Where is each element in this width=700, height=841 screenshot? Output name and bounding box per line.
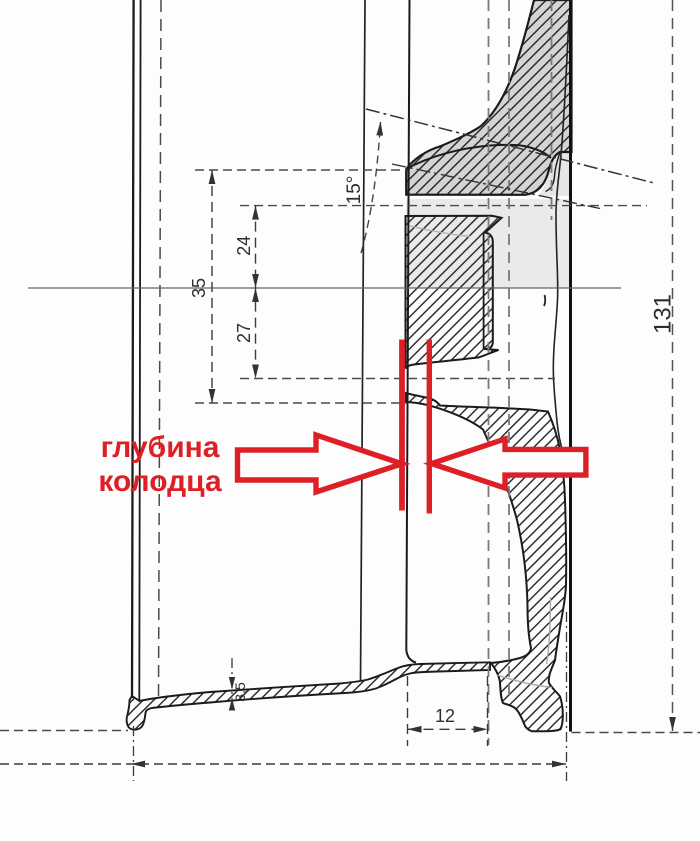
svg-text:12: 12 <box>435 706 455 726</box>
svg-text:35: 35 <box>189 278 209 298</box>
svg-text:24: 24 <box>234 236 254 256</box>
svg-text:3,5: 3,5 <box>232 682 248 702</box>
svg-text:27: 27 <box>234 323 254 343</box>
svg-text:131: 131 <box>650 294 677 334</box>
svg-text:15°: 15° <box>344 176 365 205</box>
svg-text:глубина: глубина <box>101 431 220 464</box>
svg-text:колодца: колодца <box>98 465 222 498</box>
